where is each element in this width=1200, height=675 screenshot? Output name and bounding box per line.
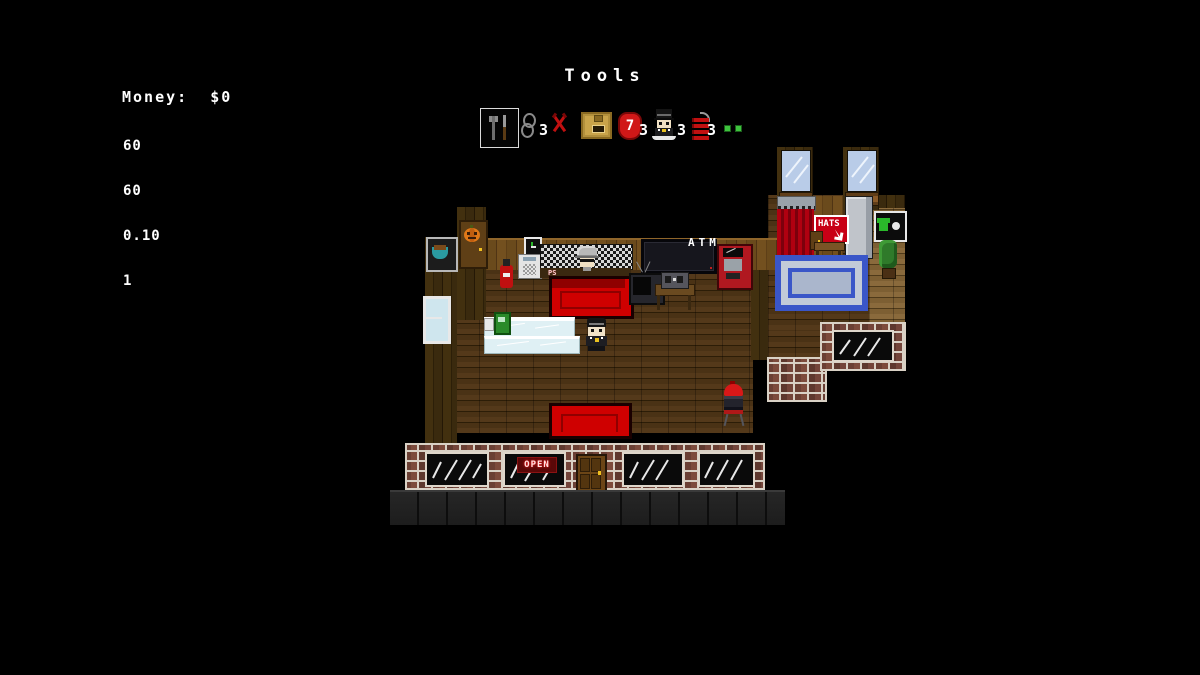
item-count: 3 — [677, 121, 686, 139]
hotbar-slot-scissors[interactable] — [551, 113, 568, 135]
green-dot-icon — [736, 126, 741, 131]
hotbar-slot-figure[interactable] — [648, 109, 680, 140]
seven-badge-icon: 7 — [626, 118, 634, 134]
item-count: 3 — [707, 121, 716, 139]
hotbar-slot-crate[interactable] — [581, 112, 612, 139]
left-window — [423, 296, 451, 344]
money-label: Money: $0 — [122, 88, 232, 106]
brick-wall — [767, 357, 827, 402]
phone[interactable] — [518, 254, 542, 279]
side-window — [832, 330, 894, 362]
potted-plant — [877, 240, 899, 282]
item-count: 3 — [539, 121, 548, 139]
open-sign: OPEN — [517, 457, 557, 473]
fire-extinguisher — [499, 259, 514, 288]
stat-line: 60 — [123, 139, 161, 154]
storefront-window — [622, 452, 684, 487]
sidewalk — [390, 490, 785, 525]
player-character — [584, 318, 609, 351]
blue-rug — [775, 255, 868, 311]
crate-icon — [592, 125, 605, 133]
door-knob — [598, 471, 601, 475]
radio — [661, 272, 689, 289]
storefront-window — [425, 452, 489, 487]
shirt-icon — [879, 218, 888, 231]
bench — [814, 242, 843, 256]
couch — [549, 403, 632, 439]
stat-line: 0.10 — [123, 229, 161, 244]
display-counter — [484, 336, 580, 354]
page-title: Tools — [470, 66, 740, 86]
game-screen: Money: $0 60 60 0.10 1 Tools 3 — [0, 0, 1200, 675]
stats-block: 60 60 0.10 1 — [123, 109, 161, 319]
hats-sign-text: HATS — [818, 219, 840, 229]
mirror — [845, 196, 873, 259]
pumpkin-icon — [463, 225, 481, 243]
atm-machine[interactable] — [717, 244, 753, 290]
storefront-window — [698, 452, 755, 487]
cash-register[interactable] — [494, 312, 511, 335]
brick-wall-window — [820, 322, 906, 371]
tower-window — [847, 150, 877, 192]
door-knob — [479, 248, 482, 251]
green-dot-icon — [725, 126, 730, 131]
hotbar-slot-selected[interactable] — [480, 108, 519, 148]
stove-shelf — [426, 237, 458, 272]
item-count: 3 — [639, 121, 648, 139]
hotbar-slot-dots[interactable] — [725, 126, 745, 134]
shopkeeper-npc[interactable] — [575, 246, 599, 271]
atm-label: ATM — [688, 236, 720, 249]
scanner — [484, 318, 494, 331]
stat-line: 60 — [123, 184, 161, 199]
bbq-grill[interactable] — [722, 381, 747, 427]
stat-line: 1 — [123, 274, 161, 289]
entrance-door[interactable] — [576, 454, 607, 495]
interior-door[interactable] — [459, 220, 488, 269]
floor-patch — [768, 330, 820, 358]
couch — [549, 276, 634, 319]
hotbar-slot-handcuffs[interactable] — [521, 112, 541, 138]
poster — [874, 211, 907, 242]
tower-window — [781, 150, 811, 192]
arrow-down-icon — [832, 229, 844, 241]
storefront-window-open: OPEN — [503, 452, 566, 487]
